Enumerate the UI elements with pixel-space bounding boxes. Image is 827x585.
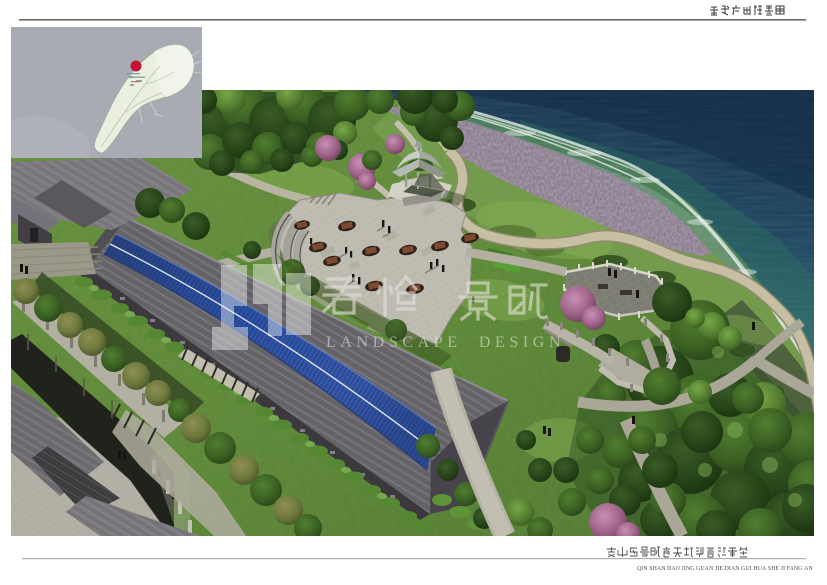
- svg-text:LANDSCAPE DESIGN: LANDSCAPE DESIGN: [326, 334, 565, 351]
- svg-text:QIN SHAN DAO JING GUAN JIE DIA: QIN SHAN DAO JING GUAN JIE DIAN GUI HUA …: [637, 566, 813, 572]
